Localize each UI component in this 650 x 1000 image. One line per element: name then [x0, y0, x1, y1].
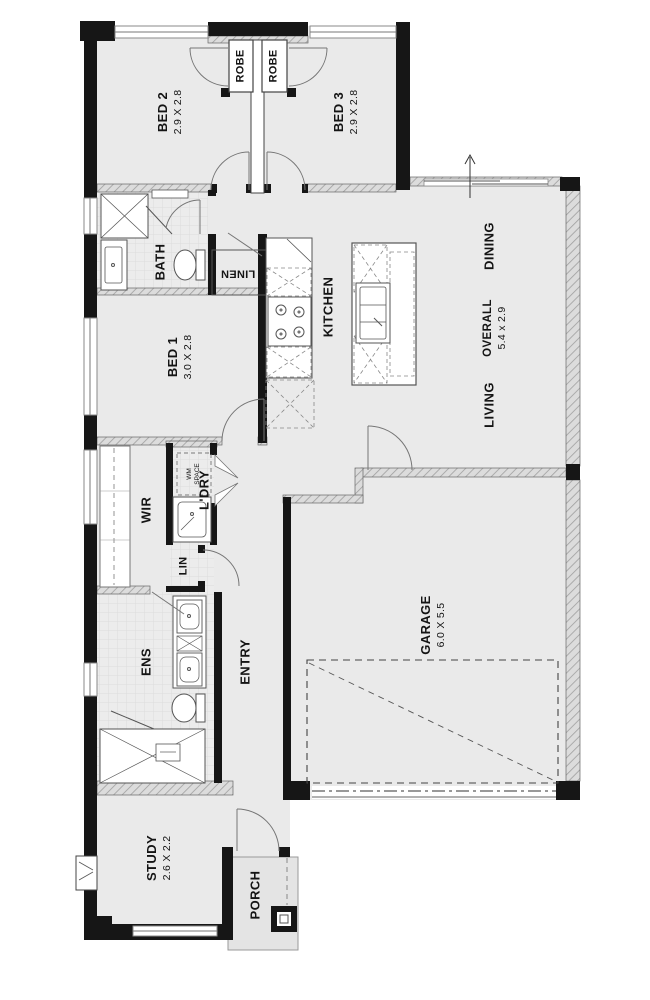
room-label-ens: ENS [140, 648, 155, 676]
room-label-bath: BATH [154, 244, 169, 281]
sliding-door [424, 179, 548, 186]
room-label-robe-right: ROBE [268, 50, 281, 83]
room-label-bed1: BED 13.0 X 2.8 [166, 335, 194, 380]
meter-box [76, 856, 97, 890]
floor-areas [84, 26, 580, 950]
bath-toilet [196, 250, 205, 280]
room-label-bed2: BED 22.9 X 2.8 [156, 90, 184, 135]
plan-linework [0, 0, 650, 1000]
room-label-robe-left: ROBE [235, 50, 248, 83]
room-label-dining: DINING [483, 222, 498, 270]
ensuite-toilet [196, 694, 205, 722]
bath-shelf [152, 190, 188, 198]
wir-shelving [100, 446, 130, 587]
room-label-study: STUDY2.6 X 2.2 [145, 835, 173, 881]
room-label-entry: ENTRY [239, 639, 254, 685]
room-label-linen: LINEN [221, 267, 256, 280]
room-label-porch: PORCH [249, 871, 264, 920]
room-label-overall: OVERALL5.4 x 2.9 [482, 299, 508, 357]
room-label-wir: WIR [140, 497, 155, 523]
floor-plan: BED 22.9 X 2.8 BED 32.9 X 2.8 ROBE ROBE … [0, 0, 650, 1000]
label-wm-space: WMSPACE [186, 463, 202, 485]
robe-lintel [208, 22, 308, 36]
room-label-kitchen: KITCHEN [322, 277, 337, 338]
room-label-lin: LIN [178, 557, 191, 576]
room-label-living: LIVING [483, 382, 498, 428]
room-label-garage: GARAGE6.0 X 5.5 [419, 595, 447, 654]
cooktop [268, 297, 311, 346]
room-label-bed3: BED 32.9 X 2.8 [332, 90, 360, 135]
